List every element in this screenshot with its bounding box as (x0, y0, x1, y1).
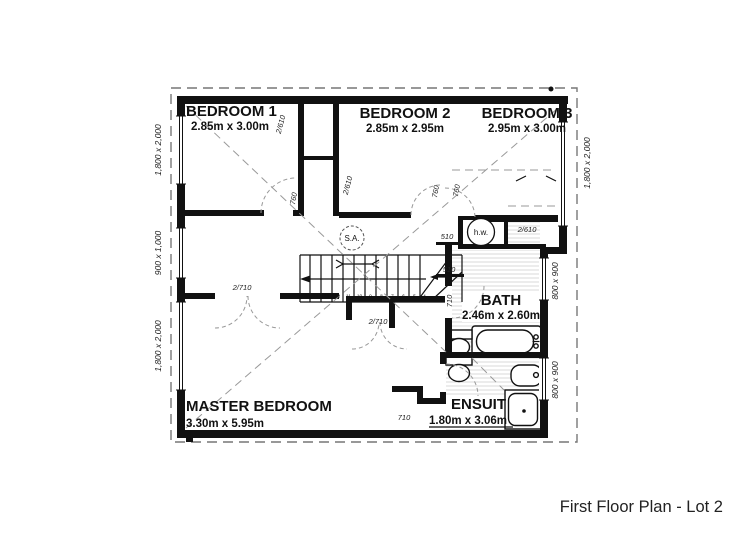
tread-number: 13 (324, 294, 330, 300)
window-right-mid (539, 258, 549, 300)
downpipe-marker (549, 87, 554, 92)
master-name: MASTER BEDROOM (186, 398, 332, 415)
window-right-bottom (539, 358, 549, 400)
corner-marker (186, 436, 193, 442)
ensuite-toilet-icon (446, 356, 472, 382)
door-label-cupboard-bottom: 510 (443, 265, 456, 274)
door-label-bed3: 760 (451, 183, 462, 198)
tread-number: 4 (423, 294, 426, 300)
window-label-right-mid: 800 x 900 (550, 262, 560, 300)
door-label-bath: 710 (445, 294, 454, 307)
ensuite-name: ENSUIT (451, 396, 506, 413)
window-left-mid (176, 228, 186, 278)
door-label-bed1: 760 (288, 191, 299, 206)
bedroom1-name: BEDROOM 1 (186, 103, 277, 120)
window-right-top (558, 122, 568, 226)
floor-plan-drawing: S.A. h.w. 15 14 13 12 11 10 9 8 7 6 5 4 … (0, 0, 749, 536)
door-label-bed2-robe: 2/610 (341, 174, 355, 196)
door-label-ensuite: 710 (398, 413, 411, 422)
tread-number: 12 (335, 294, 341, 300)
window-label-left-top: 1,800 x 2,000 (153, 124, 163, 176)
hot-water-label: h.w. (474, 228, 488, 237)
bedroom2-name: BEDROOM 2 (360, 105, 451, 122)
smoke-alarm-symbol: S.A. (340, 226, 364, 250)
hot-water-symbol: h.w. (468, 219, 495, 246)
tread-number: 9 (369, 294, 372, 300)
bath-name: BATH (481, 292, 522, 309)
window-label-right-top: 1,800 x 2,000 (582, 137, 592, 189)
tread-number: 5 (413, 294, 416, 300)
master-dims: 3.30m x 5.95m (186, 418, 264, 430)
shower-icon (505, 390, 541, 429)
window-label-left-mid: 900 x 1,000 (153, 231, 163, 276)
tread-number: 8 (380, 294, 383, 300)
smoke-alarm-label: S.A. (344, 234, 359, 243)
ensuite-basin-icon (511, 365, 542, 386)
door-label-cupboard-top: 510 (441, 232, 454, 241)
tread-number: 6 (402, 294, 405, 300)
tread-number: 14 (313, 294, 319, 300)
door-label-linen: 2/610 (517, 225, 538, 234)
tread-number: 11 (346, 294, 351, 300)
door-label-master-entry: 2/710 (232, 283, 253, 292)
bath-dims: 2.46m x 2.60m (462, 310, 540, 322)
bedroom3-name: BEDROOM 3 (482, 105, 573, 122)
bedroom1-dims: 2.85m x 3.00m (191, 121, 269, 133)
tread-number: 7 (391, 294, 394, 300)
tread-number: 15 (302, 294, 308, 300)
bedroom2-dims: 2.85m x 2.95m (366, 123, 444, 135)
floor-plan-sheet: S.A. h.w. 15 14 13 12 11 10 9 8 7 6 5 4 … (0, 0, 749, 536)
tread-number: 10 (357, 294, 363, 300)
window-left-top (176, 116, 186, 184)
door-label-master-robe: 2/710 (368, 317, 389, 326)
window-left-bottom (176, 302, 186, 390)
window-label-left-bottom: 1,800 x 2,000 (153, 320, 163, 372)
door-label-bed2: 760 (430, 184, 441, 199)
plan-title: First Floor Plan - Lot 2 (560, 498, 723, 516)
window-label-right-bottom: 800 x 900 (550, 361, 560, 399)
ensuite-dims: 1.80m x 3.06m (429, 415, 507, 427)
bedroom3-dims: 2.95m x 3.00m (488, 123, 566, 135)
